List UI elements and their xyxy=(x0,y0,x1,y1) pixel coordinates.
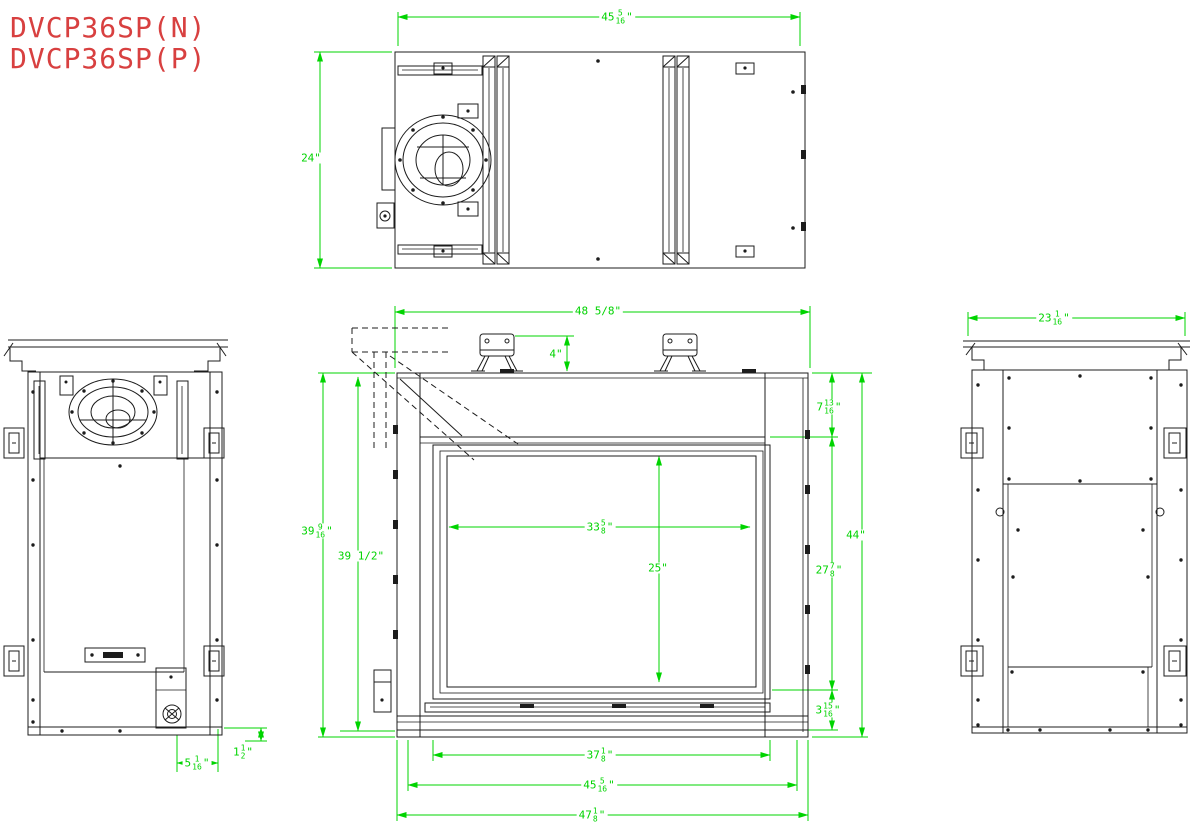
dimension-lines xyxy=(177,12,1185,821)
gas-inlet-box xyxy=(156,668,186,728)
dim-label-glass-height: 25" xyxy=(646,563,670,574)
damper-handle xyxy=(382,128,395,190)
hanger-bracket-left xyxy=(471,334,523,371)
dim-label-header-height: 71316" xyxy=(815,399,844,414)
dim-label-gas-inlet-offset: 5116" xyxy=(183,755,212,770)
dim-label-bottom-width-mid: 45516" xyxy=(581,777,617,792)
dim-label-glass-width: 3358" xyxy=(585,519,616,534)
dim-label-base-height: 31516" xyxy=(814,702,843,717)
dim-label-overall-height: 44" xyxy=(844,530,868,541)
technical-drawing-svg xyxy=(0,0,1194,839)
left-side-view xyxy=(4,340,228,735)
dim-label-firebox-front-height: 2778" xyxy=(814,562,845,577)
dim-label-bracket-height: 4" xyxy=(547,349,564,360)
hidden-flue-lines xyxy=(352,328,518,460)
dim-label-top-width: 45516" xyxy=(599,9,635,24)
dim-label-bottom-width-inner: 3718" xyxy=(585,747,616,762)
model-title-line1: DVCP36SP(N) xyxy=(10,12,206,43)
drawing-sheet: DVCP36SP(N) DVCP36SP(P) 45516" 24" 48 5/… xyxy=(0,0,1194,839)
dim-label-rear-width: 23116" xyxy=(1036,310,1072,325)
dim-label-gas-inlet-height: 112" xyxy=(231,744,255,759)
dim-label-height-outer: 39916" xyxy=(299,523,335,538)
flue-collar-side xyxy=(69,379,157,445)
model-title-line2: DVCP36SP(P) xyxy=(10,43,206,74)
gas-valve-box xyxy=(374,670,391,712)
dim-label-front-width-top: 48 5/8" xyxy=(573,306,623,317)
top-rail-right xyxy=(663,56,689,264)
top-view xyxy=(377,52,806,268)
model-title: DVCP36SP(N) DVCP36SP(P) xyxy=(10,12,206,75)
side-brackets-left-view xyxy=(4,428,224,676)
dim-label-height-inner: 39 1/2" xyxy=(336,551,386,562)
flue-collar-top xyxy=(395,115,491,205)
rear-side-view xyxy=(961,341,1190,733)
dim-label-top-depth: 24" xyxy=(299,153,323,164)
dim-label-bottom-width-outer: 4718" xyxy=(577,807,608,822)
front-view xyxy=(352,328,810,737)
glass-window xyxy=(433,445,770,699)
hanger-bracket-right xyxy=(654,334,706,371)
